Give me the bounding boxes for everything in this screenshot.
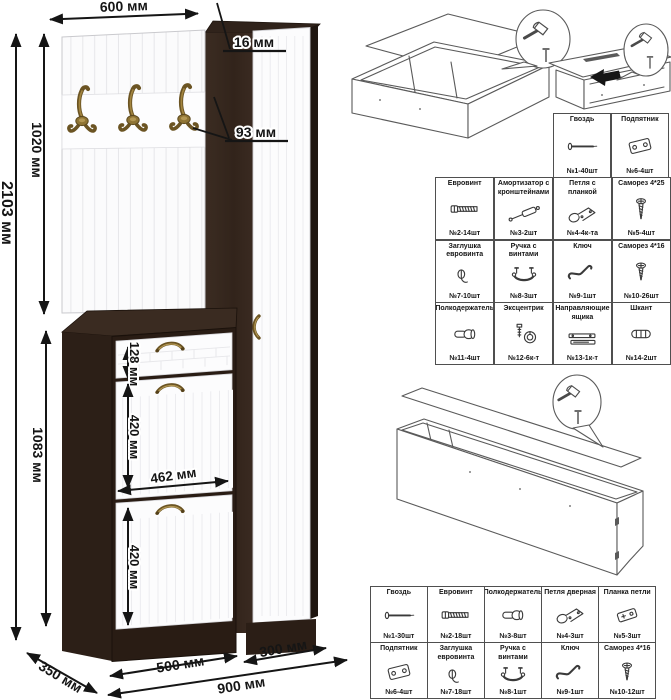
dim-hook-spacing: 93 мм [236,124,276,140]
hardware-item: Саморез 4*25 №5-4шт [613,178,670,239]
hardware-item: Ключ №9-1шт [554,241,611,302]
hardware-item: Полкодержатель №11-4шт [436,303,493,364]
dim-lower-door-height: 420 мм [127,545,142,590]
euro-screw-icon [439,603,473,627]
assembly-step-back-panel [352,10,570,138]
screw-cap-icon [448,264,482,288]
shoe-cabinet [62,308,237,661]
dim-upper-door-height: 420 мм [127,415,142,460]
hardware-item: Подпятник №6-4шт [612,114,668,177]
hardware-item: Петля дверная №4-3шт [542,587,598,642]
shelf-pin-icon [448,322,482,346]
hallway-unit-drawing [62,21,320,661]
hardware-item: Ручка с винтами №8-3шт [495,241,552,302]
dim-upper-height: 1020 мм [29,122,45,178]
euro-screw-icon [448,197,482,221]
dim-panel-thickness: 16 мм [234,34,274,50]
hex-key-icon [553,660,587,684]
hinge-icon [565,202,599,226]
dim-top-width: 600 мм [100,0,148,15]
hardware-item: Эксцентрик №12-6к-т [495,303,552,364]
hardware-item: Подпятник №6-4шт [371,643,427,698]
hammer-callout-bubble [553,375,601,429]
hardware-item: Петля с планкой №4-4к-та [554,178,611,239]
dowel-icon [624,322,658,346]
hardware-table-upper-main: Евровинт №2-14шт Амортизатор с кронштейн… [435,177,671,365]
dim-drawer-height: 128 мм [127,342,142,387]
assembly-step-long-box [397,375,643,575]
hardware-item: Гвоздь №1-30шт [371,587,427,642]
hook-panel [62,30,205,313]
hardware-item: Шкант №14-2шт [613,303,670,364]
hardware-item: Евровинт №2-18шт [428,587,484,642]
hardware-item: Направляющие ящика №13-1к-т [554,303,611,364]
hinge-icon [553,603,587,627]
drawer-slides-icon [565,327,599,351]
hardware-table-upper-small: Гвоздь №1-40шт Подпятник №6-4шт [553,113,669,178]
screw-4x16-icon [624,260,658,284]
hardware-item: Полкодержатель №3-8шт [485,587,541,642]
gas-strut-icon [507,202,541,226]
hardware-item: Евровинт №2-14шт [436,178,493,239]
hardware-item: Заглушка евровинта №7-18шт [428,643,484,698]
hardware-item: Планка петли №5-3шт [599,587,655,642]
screw-4x25-icon [624,197,658,221]
hinge-plate-icon [610,603,644,627]
hardware-item: Саморез 4*16 №10-26шт [613,241,670,302]
hex-key-icon [565,260,599,284]
screw-cap-icon [439,664,473,688]
dim-lower-height: 1083 мм [30,427,46,483]
hardware-item: Ручка с винтами №8-1шт [485,643,541,698]
screw-4x16-icon [610,660,644,684]
nail-icon [382,603,416,627]
dim-depth: 350 мм [36,658,85,696]
assembly-instruction-page: 600 мм 16 мм 93 мм 1020 мм 2103 мм 1083 … [0,0,671,700]
foot-plate-icon [623,134,657,158]
shelf-pin-icon [496,603,530,627]
foot-plate-icon [382,660,416,684]
nail-icon [565,134,599,158]
hammer-callout-bubble [624,24,668,76]
dim-total-height: 2103 мм [0,181,15,245]
dim-total-width: 900 мм [216,673,266,696]
cam-lock-icon [507,322,541,346]
handle-icon [496,664,530,688]
hardware-item: Гвоздь №1-40шт [554,114,610,177]
hardware-table-lower-main: Гвоздь №1-30шт Евровинт №2-18шт Полкодер… [370,586,656,699]
hardware-item: Ключ №9-1шт [542,643,598,698]
hardware-item: Саморез 4*16 №10-12шт [599,643,655,698]
hardware-item: Амортизатор с кронштейнами №3-2шт [495,178,552,239]
hardware-item: Заглушка евровинта №7-10шт [436,241,493,302]
handle-icon [507,264,541,288]
